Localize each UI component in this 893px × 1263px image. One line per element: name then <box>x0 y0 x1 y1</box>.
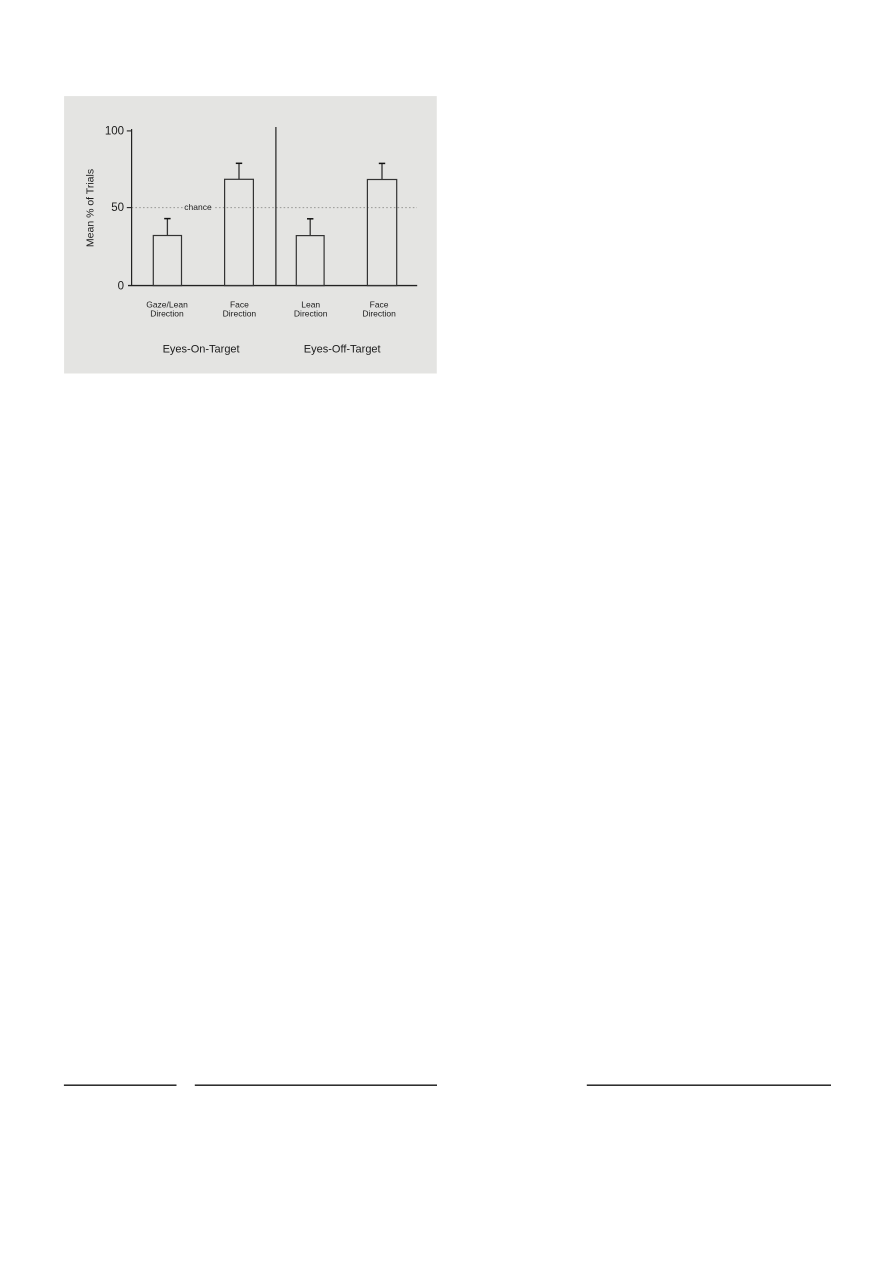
svg-text:0: 0 <box>118 281 124 293</box>
svg-text:Direction: Direction <box>362 308 396 318</box>
svg-text:Direction: Direction <box>294 308 328 318</box>
svg-text:Eyes-Off-Target: Eyes-Off-Target <box>304 343 381 355</box>
svg-text:Eyes-On-Target: Eyes-On-Target <box>163 343 240 355</box>
svg-text:chance: chance <box>184 202 212 212</box>
svg-text:100: 100 <box>105 125 124 137</box>
svg-text:Direction: Direction <box>150 308 184 318</box>
svg-text:50: 50 <box>111 202 124 214</box>
svg-text:Direction: Direction <box>223 308 257 318</box>
svg-text:Mean % of Trials: Mean % of Trials <box>85 169 97 247</box>
